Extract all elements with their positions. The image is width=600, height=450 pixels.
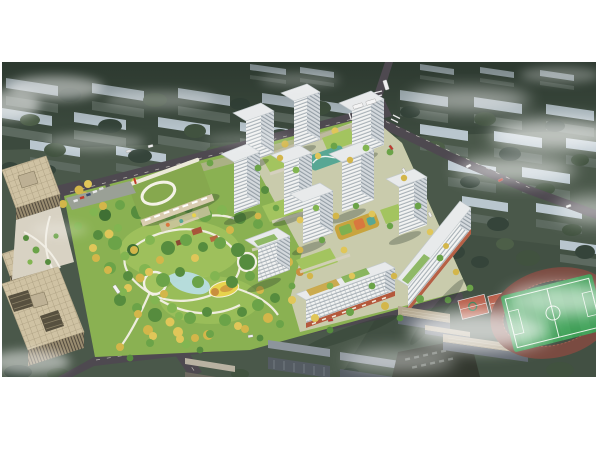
rendering-canvas — [0, 0, 600, 450]
aerial-rendering — [2, 62, 596, 377]
